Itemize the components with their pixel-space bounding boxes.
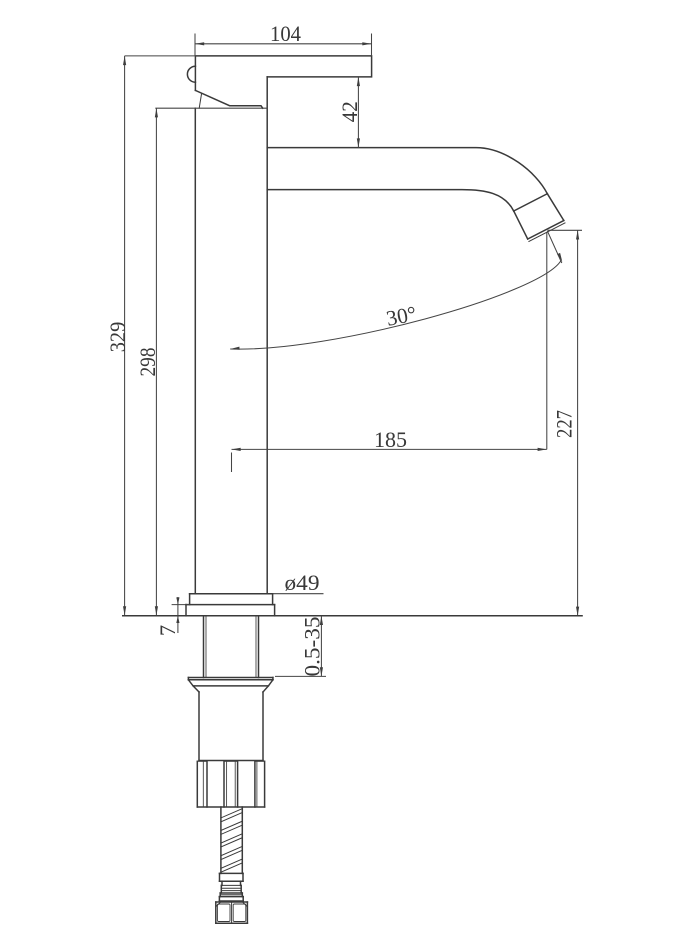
svg-text:298: 298 [135,348,160,377]
svg-text:329: 329 [105,322,130,353]
svg-text:7: 7 [155,625,180,636]
svg-text:104: 104 [270,21,301,46]
svg-text:ø49: ø49 [285,570,320,595]
svg-text:0.5-35: 0.5-35 [300,617,325,677]
svg-text:42: 42 [337,101,362,122]
svg-text:227: 227 [552,410,577,438]
svg-text:185: 185 [374,427,407,452]
